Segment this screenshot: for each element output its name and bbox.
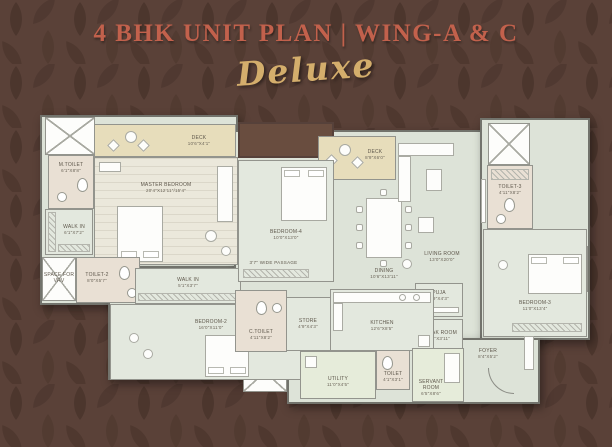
- passage-label: 3'7" WIDE PASSAGE: [216, 260, 331, 265]
- pillow: [531, 257, 547, 264]
- room-toilet-3: TOILET-34'11"X8'2": [487, 165, 533, 229]
- room-master-toilet: M.TOILET6'1"X8'8": [48, 155, 94, 209]
- shaft-top-left: [45, 117, 95, 155]
- pillow: [308, 170, 324, 177]
- dining-chair: [380, 189, 387, 196]
- room-label: FOYER8'4"X5'2": [458, 348, 518, 360]
- deck-chair: [351, 156, 364, 169]
- dining-chair: [380, 260, 387, 267]
- room-vrv-space: SPACE FOR VRV: [42, 257, 76, 301]
- armchair: [418, 217, 434, 233]
- toilet-fixture: [504, 198, 515, 212]
- bed: [528, 254, 582, 294]
- deck-chair: [125, 131, 137, 143]
- washer: [305, 356, 317, 368]
- room-label: BEDROOM-410'0"X13'0": [239, 229, 333, 241]
- shower-hatch: [491, 169, 529, 180]
- deck-chair: [339, 144, 351, 156]
- pillow: [230, 367, 246, 374]
- chair: [221, 246, 231, 256]
- dresser: [99, 162, 121, 172]
- dining-chair: [356, 242, 363, 249]
- room-label: WALK IN6'1"X7'2": [56, 224, 92, 236]
- plant: [402, 259, 412, 269]
- room-label: C.TOILET4'11"X8'2": [236, 329, 286, 341]
- room-utility: UTILITY11'0"X4'5": [300, 351, 376, 399]
- room-walk-in-master: WALK IN6'1"X7'2": [45, 209, 93, 255]
- room-deck-master: DECK10'6"X4'1": [94, 124, 236, 157]
- pillow: [284, 170, 300, 177]
- room-label: TOILET-34'11"X8'2": [488, 184, 532, 196]
- room-servant: SERVANT ROOM6'5"X8'6": [412, 348, 464, 402]
- room-walk-in-2: WALK IN5'1"X3'7": [135, 268, 241, 304]
- deck-chair: [107, 139, 120, 152]
- fridge: [418, 335, 430, 347]
- room-toilet-2: TOILET-28'0"X5'7": [76, 257, 140, 303]
- wardrobe-hatch: [138, 293, 238, 301]
- room-label: DECK10'6"X4'1": [165, 135, 233, 147]
- sink-fixture: [496, 214, 506, 224]
- wardrobe-hatch: [48, 212, 56, 252]
- sink-fixture: [57, 192, 67, 202]
- room-label: DECK8'9"X6'0": [357, 149, 393, 161]
- pillow: [563, 257, 579, 264]
- shoe-cabinet: [524, 336, 534, 370]
- wardrobe-hatch: [243, 269, 309, 278]
- chair: [205, 230, 217, 242]
- sofa: [398, 156, 411, 202]
- wardrobe-hatch: [58, 244, 90, 252]
- room-label: MASTER BEDROOM20'4"X12'11"/15'4": [95, 182, 237, 194]
- room-label: KITCHEN12'6"X8'5": [331, 320, 433, 332]
- floor-plan: DECK10'6"X4'1" DECK8'9"X6'0" M.TOILET6'1…: [36, 112, 590, 404]
- room-label: M.TOILET6'1"X8'8": [49, 162, 93, 174]
- room-label: TOILET4'1"X3'1": [377, 371, 409, 383]
- chair: [129, 333, 139, 343]
- bed: [281, 167, 327, 221]
- bed: [117, 206, 163, 262]
- wardrobe: [217, 166, 233, 222]
- kitchen-counter: [333, 303, 343, 331]
- room-label: UTILITY11'0"X4'5": [301, 376, 375, 388]
- sink-fixture: [413, 294, 420, 301]
- chair: [498, 260, 508, 270]
- pillow: [143, 251, 159, 258]
- room-label: WALK IN5'1"X3'7": [136, 277, 240, 289]
- room-common-toilet: C.TOILET4'11"X8'2": [235, 290, 287, 352]
- entrance-door-arc: [488, 368, 514, 394]
- pillow: [208, 367, 224, 374]
- dining-chair: [356, 224, 363, 231]
- room-kitchen: KITCHEN12'6"X8'5": [330, 289, 434, 351]
- room-label: SPACE FOR VRV: [43, 272, 75, 284]
- room-label: STORE4'9"X4'3": [286, 318, 330, 330]
- sink-fixture: [272, 303, 282, 313]
- room-store: STORE4'9"X4'3": [285, 297, 331, 351]
- hob: [399, 294, 406, 301]
- tv-console: [481, 179, 486, 223]
- coffee-table: [426, 169, 442, 191]
- room-servant-toilet: TOILET4'1"X3'1": [376, 350, 410, 390]
- toilet-fixture: [256, 301, 267, 315]
- toilet-fixture: [119, 266, 130, 280]
- room-label: TOILET-28'0"X5'7": [79, 272, 115, 284]
- room-master-bedroom: MASTER BEDROOM20'4"X12'11"/15'4": [94, 157, 238, 265]
- toilet-fixture: [77, 178, 88, 192]
- zone-living-room: LIVING ROOM13'0"X20'0": [396, 139, 488, 289]
- dining-chair: [356, 206, 363, 213]
- zone-foyer: FOYER8'4"X5'2": [458, 310, 538, 402]
- deck-chair: [137, 139, 150, 152]
- shaft-top-right: [488, 123, 530, 165]
- chair: [143, 349, 153, 359]
- sofa: [398, 143, 454, 156]
- toilet-fixture: [382, 356, 393, 370]
